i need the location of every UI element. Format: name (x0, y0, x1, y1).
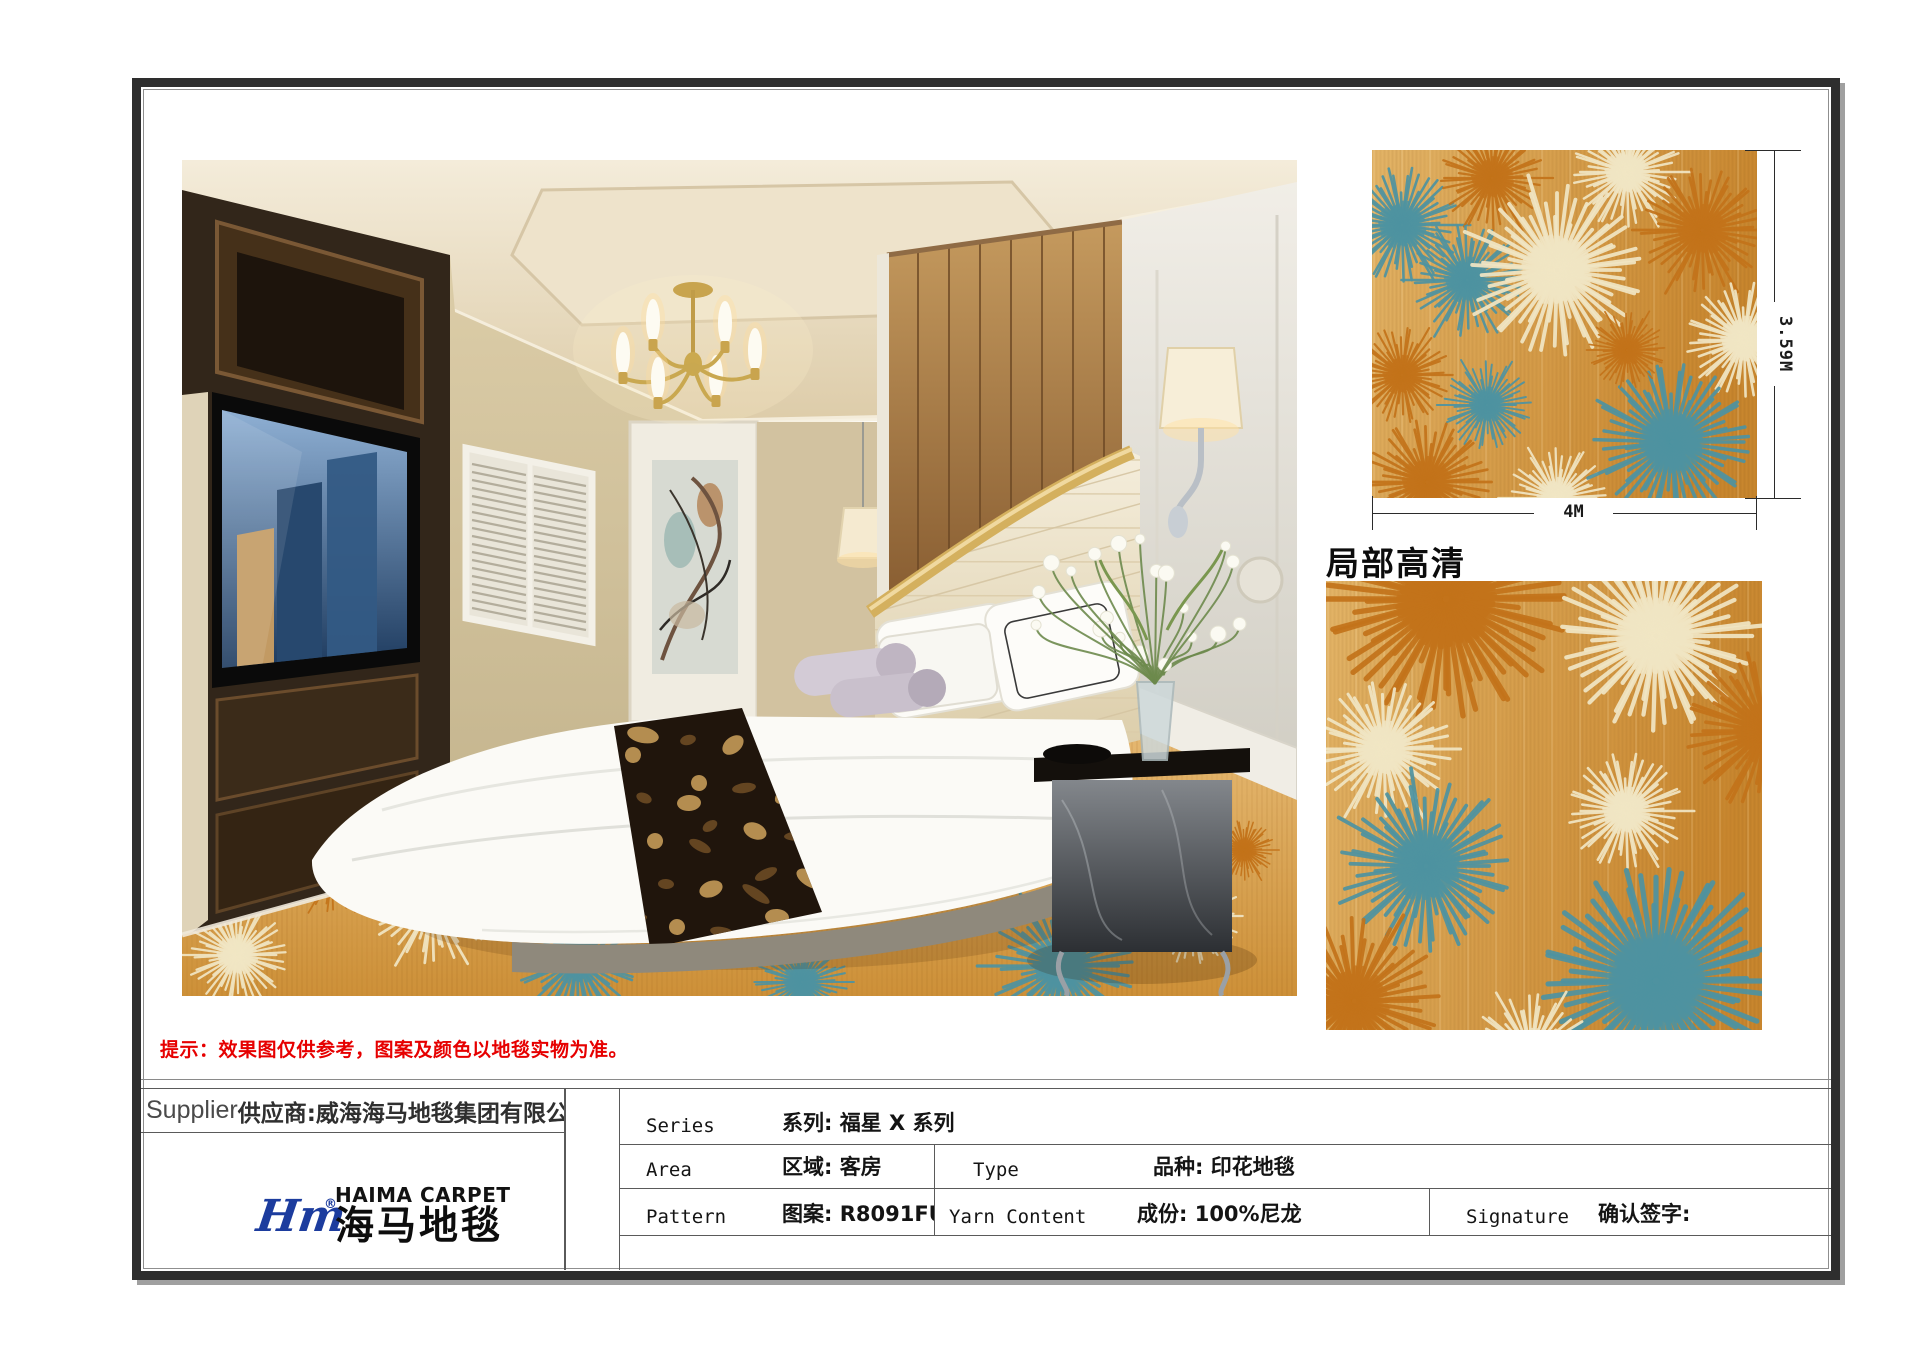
series-cell: Series系列: 福星 X 系列 (620, 1089, 1831, 1145)
logo-brand-cn: 海马地毯 (335, 1207, 511, 1246)
yarn-label-en: Yarn Content (949, 1206, 1137, 1228)
carpet-swatch-full-svg (1372, 150, 1757, 498)
type-cell: Type品种: 印花地毯 (935, 1145, 1831, 1189)
room-chandelier (573, 275, 813, 425)
supplier-label-en: Supplier (146, 1096, 238, 1125)
spec-sheet-page: 3.59M 4M 局部高清 提示：效果图仅供参考，图案及颜色以地毯实物为准。 S… (132, 78, 1840, 1280)
signature-value: 确认签字: (1598, 1198, 1690, 1228)
room-table-tray (1043, 744, 1111, 764)
height-dim-top-tick (1745, 150, 1801, 151)
room-window-shutters (466, 448, 592, 642)
room-wall-art (652, 460, 738, 674)
pattern-value: 图案: R8091FU/H211B (782, 1198, 935, 1228)
logo-cell: Hm ® HAIMA CARPET 海马地毯 (141, 1133, 565, 1270)
width-dim-line-left (1372, 513, 1534, 514)
room-tv-screen (222, 410, 412, 670)
area-value: 区域: 客房 (782, 1151, 882, 1181)
height-dim-bottom-tick (1745, 498, 1801, 499)
carpet-swatch-closeup-svg (1326, 581, 1762, 1030)
signature-cell: Signature确认签字: (1430, 1189, 1831, 1236)
width-dim-label: 4M (1536, 502, 1611, 522)
series-value: 系列: 福星 X 系列 (782, 1107, 955, 1137)
pattern-cell: Pattern图案: R8091FU/H211B (620, 1189, 935, 1236)
height-dim-line-lower (1774, 386, 1775, 499)
area-cell: Area区域: 客房 (620, 1145, 935, 1189)
title-block-table: Supplier供应商:威海海马地毯集团有限公司 Hm ® HAIMA CARP… (141, 1088, 1831, 1270)
type-label-en: Type (973, 1159, 1153, 1181)
room-render-svg (182, 160, 1297, 996)
supplier-value: 供应商:威海海马地毯集团有限公司 (238, 1094, 565, 1128)
width-dim-line-right (1613, 513, 1757, 514)
height-dim-line-upper (1774, 150, 1775, 302)
carpet-swatch-full (1372, 150, 1757, 498)
disclaimer-note: 提示：效果图仅供参考，图案及颜色以地毯实物为准。 (160, 1035, 628, 1062)
area-label-en: Area (646, 1159, 782, 1181)
height-dim-label: 3.59M (1755, 305, 1795, 383)
titleblock-divider-line (141, 1079, 1831, 1080)
table-gap-column (565, 1089, 620, 1270)
closeup-label: 局部高清 (1326, 537, 1466, 585)
type-value: 品种: 印花地毯 (1153, 1151, 1295, 1181)
yarn-value: 成份: 100%尼龙 (1137, 1198, 1302, 1228)
supplier-cell: Supplier供应商:威海海马地毯集团有限公司 (141, 1089, 565, 1133)
yarn-content-cell: Yarn Content成份: 100%尼龙 (935, 1189, 1430, 1236)
signature-label-en: Signature (1466, 1206, 1598, 1228)
pattern-label-en: Pattern (646, 1206, 782, 1228)
carpet-swatch-closeup (1326, 581, 1762, 1030)
logo-brand-en: HAIMA CARPET (335, 1185, 511, 1205)
room-render-image (182, 160, 1297, 996)
series-label-en: Series (646, 1115, 782, 1137)
logo-wordmark: HAIMA CARPET 海马地毯 (335, 1185, 511, 1246)
